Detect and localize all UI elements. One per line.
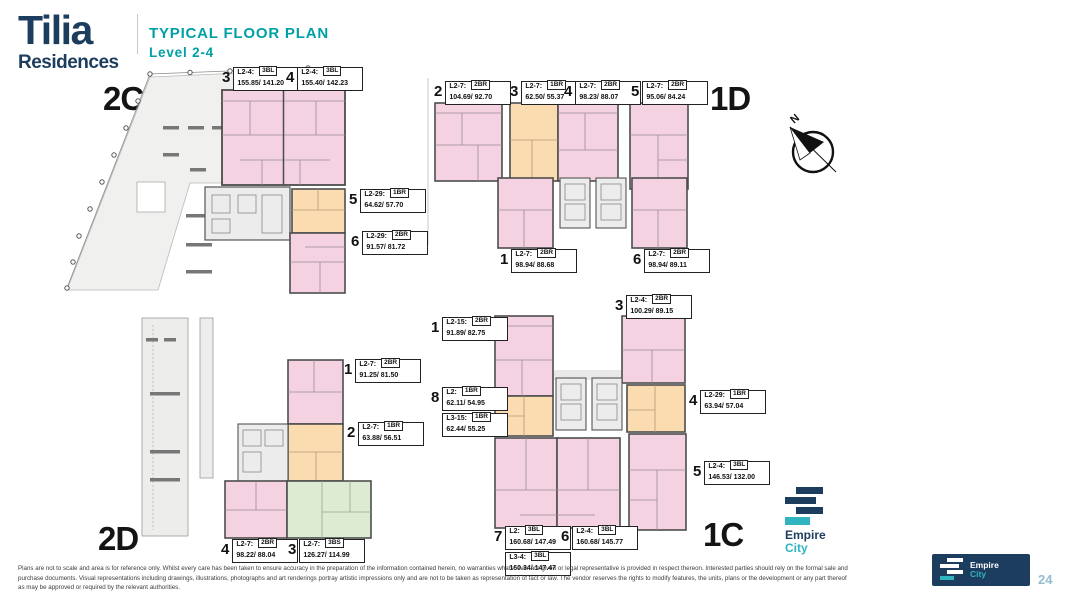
unit-number: 4 — [564, 84, 572, 99]
unit-level: L3-4: — [509, 554, 526, 562]
unit-number: 3 — [510, 84, 518, 99]
unit-label: 4L2-7:2BR98.23/ 88.07 — [564, 81, 641, 105]
unit-level: L2-7: — [525, 83, 542, 91]
unit-number: 6 — [561, 529, 569, 544]
unit-info-row: L2-29:1BR — [704, 392, 762, 402]
unit-label-boxes: L2-7:2BR98.94/ 89.11 — [644, 249, 710, 273]
unit-area: 91.25/ 81.50 — [359, 372, 417, 380]
unit-area: 62.11/ 54.95 — [446, 400, 504, 408]
unit-number: 4 — [286, 70, 294, 85]
unit-level: L2-7: — [579, 83, 596, 91]
unit-level: L2-7: — [515, 251, 532, 259]
unit-type-badge: 2BR — [258, 538, 277, 548]
unit-level: L2: — [509, 528, 520, 536]
unit-label-boxes: L2-7:2BR95.06/ 84.24 — [642, 81, 708, 105]
unit-info-box: L2-7:2BR91.25/ 81.50 — [355, 359, 421, 383]
unit-label-boxes: L2-7:1BR63.88/ 56.51 — [358, 422, 424, 446]
unit-number: 3 — [222, 70, 230, 85]
unit-area: 63.88/ 56.51 — [362, 435, 420, 443]
logo-text-city: City — [970, 570, 999, 579]
unit-label: 4L2-7:2BR98.22/ 88.04 — [221, 539, 298, 563]
unit-label-boxes: L2-7:3BS126.27/ 114.99 — [299, 539, 365, 563]
unit-number: 2 — [434, 84, 442, 99]
unit-area: 160.68/ 147.49 — [509, 539, 567, 547]
page-number: 24 — [1038, 572, 1052, 587]
unit-label: 3L2-7:3BS126.27/ 114.99 — [288, 539, 365, 563]
unit-info-box: L2-7:3BS126.27/ 114.99 — [299, 539, 365, 563]
empire-logo-bars-icon — [785, 487, 826, 525]
unit-level: L2-4: — [237, 69, 254, 77]
unit-area: 98.22/ 88.04 — [236, 552, 294, 560]
unit-area: 63.94/ 57.04 — [704, 403, 762, 411]
unit-label: 4L2-29:1BR63.94/ 57.04 — [689, 390, 766, 414]
unit-info-box: L2-4:2BR100.29/ 89.15 — [626, 295, 692, 319]
unit-info-box: L2-4:3BL155.40/ 142.23 — [297, 67, 363, 91]
unit-area: 104.69/ 92.70 — [449, 94, 507, 102]
unit-number: 6 — [351, 234, 359, 249]
unit-label: 8L2:1BR62.11/ 54.95L3-15:1BR62.44/ 55.25 — [431, 387, 508, 437]
unit-number: 6 — [633, 252, 641, 267]
unit-type-badge: 2BR — [381, 358, 400, 368]
unit-area: 98.94/ 88.68 — [515, 262, 573, 270]
unit-number: 3 — [288, 542, 296, 557]
unit-area: 91.57/ 81.72 — [366, 244, 424, 252]
unit-info-row: L2-7:1BR — [362, 424, 420, 434]
unit-label: 5L2-4:3BL146.53/ 132.00 — [693, 461, 770, 485]
unit-info-box: L2-15:2BR91.89/ 82.75 — [442, 317, 508, 341]
unit-label: 5L2-29:1BR64.62/ 57.70 — [349, 189, 426, 213]
unit-area: 62.44/ 55.25 — [446, 426, 504, 434]
logo-text-city: City — [785, 542, 826, 555]
unit-level: L3-15: — [446, 415, 467, 423]
unit-type-badge: 2BR — [392, 230, 411, 240]
unit-type-badge: 3BL — [323, 66, 341, 76]
unit-type-badge: 1BR — [462, 386, 481, 396]
unit-number: 2 — [347, 425, 355, 440]
unit-label-boxes: L2-4:2BR100.29/ 89.15 — [626, 295, 692, 319]
unit-info-box: L3-15:1BR62.44/ 55.25 — [442, 413, 508, 437]
unit-number: 4 — [221, 542, 229, 557]
unit-label: 6L2-4:3BL160.68/ 145.77 — [561, 526, 638, 550]
unit-label: 1L2-15:2BR91.89/ 82.75 — [431, 317, 508, 341]
unit-label: 2L2-7:1BR63.88/ 56.51 — [347, 422, 424, 446]
unit-number: 5 — [349, 192, 357, 207]
unit-number: 5 — [631, 84, 639, 99]
unit-type-badge: 3BL — [525, 525, 543, 535]
unit-info-row: L2-7:2BR — [515, 251, 573, 261]
unit-label-boxes: L2-7:2BR104.69/ 92.70 — [445, 81, 511, 105]
unit-area: 155.40/ 142.23 — [301, 80, 359, 88]
unit-info-row: L3-15:1BR — [446, 415, 504, 425]
unit-type-badge: 1BR — [384, 421, 403, 431]
unit-level: L2-4: — [576, 528, 593, 536]
unit-type-badge: 3BL — [730, 460, 748, 470]
unit-area: 160.68/ 145.77 — [576, 539, 634, 547]
unit-label-boxes: L2-4:3BL155.40/ 142.23 — [297, 67, 363, 91]
unit-number: 3 — [615, 298, 623, 313]
unit-info-box: L2-29:1BR64.62/ 57.70 — [360, 189, 426, 213]
unit-info-box: L2:1BR62.11/ 54.95 — [442, 387, 508, 411]
unit-number: 4 — [689, 393, 697, 408]
logo-text-empire: Empire — [785, 529, 826, 542]
unit-label-boxes: L2-29:2BR91.57/ 81.72 — [362, 231, 428, 255]
unit-level: L2-29: — [366, 233, 387, 241]
unit-area: 98.23/ 88.07 — [579, 94, 637, 102]
unit-type-badge: 2BR — [668, 80, 687, 90]
unit-number: 1 — [431, 320, 439, 335]
unit-type-badge: 2BR — [537, 248, 556, 258]
unit-info-row: L2-15:2BR — [446, 319, 504, 329]
unit-type-badge: 2BR — [652, 294, 671, 304]
unit-level: L2-29: — [704, 392, 725, 400]
unit-label-boxes: L2-4:3BL146.53/ 132.00 — [704, 461, 770, 485]
unit-info-box: L2-7:2BR95.06/ 84.24 — [642, 81, 708, 105]
unit-area: 146.53/ 132.00 — [708, 474, 766, 482]
unit-info-row: L2-7:2BR — [648, 251, 706, 261]
brochure-page: Tilia Residences TYPICAL FLOOR PLAN Leve… — [0, 0, 1067, 600]
unit-type-badge: 3BL — [259, 66, 277, 76]
unit-type-badge: 2BR — [472, 316, 491, 326]
unit-info-box: L2-7:1BR63.88/ 56.51 — [358, 422, 424, 446]
unit-label: 4L2-4:3BL155.40/ 142.23 — [286, 67, 363, 91]
unit-area: 95.06/ 84.24 — [646, 94, 704, 102]
unit-info-row: L2-4:3BL — [576, 528, 634, 538]
unit-level: L2-4: — [708, 463, 725, 471]
unit-level: L2-7: — [449, 83, 466, 91]
unit-level: L2-29: — [364, 191, 385, 199]
unit-info-row: L2-7:2BR — [646, 83, 704, 93]
unit-level: L2: — [446, 389, 457, 397]
unit-type-badge: 1BR — [730, 389, 749, 399]
unit-label: 1L2-7:2BR91.25/ 81.50 — [344, 359, 421, 383]
unit-info-row: L2-4:3BL — [708, 463, 766, 473]
unit-area: 100.29/ 89.15 — [630, 308, 688, 316]
unit-label-boxes: L2:1BR62.11/ 54.95L3-15:1BR62.44/ 55.25 — [442, 387, 508, 437]
unit-area: 126.27/ 114.99 — [303, 552, 361, 560]
unit-type-badge: 3BL — [531, 551, 549, 561]
unit-number: 1 — [344, 362, 352, 377]
unit-info-box: L2-7:2BR98.94/ 88.68 — [511, 249, 577, 273]
unit-label: 5L2-7:2BR95.06/ 84.24 — [631, 81, 708, 105]
unit-label-boxes: L2-15:2BR91.89/ 82.75 — [442, 317, 508, 341]
unit-label: 2L2-7:2BR104.69/ 92.70 — [434, 81, 511, 105]
unit-level: L2-7: — [646, 83, 663, 91]
unit-info-row: L2-4:2BR — [630, 297, 688, 307]
unit-info-row: L2-29:2BR — [366, 233, 424, 243]
unit-area: 98.94/ 89.11 — [648, 262, 706, 270]
unit-number: 7 — [494, 529, 502, 544]
unit-label: 6L2-29:2BR91.57/ 81.72 — [351, 231, 428, 255]
unit-type-badge: 2BR — [601, 80, 620, 90]
unit-label: 3L2-4:2BR100.29/ 89.15 — [615, 295, 692, 319]
unit-type-badge: 1BR — [472, 412, 491, 422]
unit-type-badge: 2BR — [471, 80, 490, 90]
unit-number: 8 — [431, 390, 439, 405]
unit-label: 6L2-7:2BR98.94/ 89.11 — [633, 249, 710, 273]
unit-info-row: L2-7:2BR — [579, 83, 637, 93]
unit-info-row: L2:3BL — [509, 528, 567, 538]
unit-area: 91.89/ 82.75 — [446, 330, 504, 338]
unit-labels-layer: 3L2-4:3BL155.85/ 141.204L2-4:3BL155.40/ … — [0, 0, 1067, 600]
unit-level: L2-7: — [236, 541, 253, 549]
unit-info-row: L2-7:3BS — [303, 541, 361, 551]
unit-label-boxes: L2-4:3BL160.68/ 145.77 — [572, 526, 638, 550]
unit-label-boxes: L2-29:1BR63.94/ 57.04 — [700, 390, 766, 414]
unit-info-row: L2-7:2BR — [449, 83, 507, 93]
unit-type-badge: 1BR — [390, 188, 409, 198]
unit-info-row: L2-4:3BL — [301, 69, 359, 79]
unit-info-row: L3-4:3BL — [509, 554, 567, 564]
unit-label-boxes: L2-7:2BR91.25/ 81.50 — [355, 359, 421, 383]
unit-info-row: L2-7:2BR — [359, 361, 417, 371]
empire-city-logo: Empire City — [785, 487, 826, 554]
unit-level: L2-7: — [303, 541, 320, 549]
empire-logo-bars-icon — [940, 558, 963, 582]
unit-number: 1 — [500, 252, 508, 267]
unit-info-row: L2:1BR — [446, 389, 504, 399]
unit-info-box: L2-29:1BR63.94/ 57.04 — [700, 390, 766, 414]
unit-label-boxes: L2-29:1BR64.62/ 57.70 — [360, 189, 426, 213]
unit-type-badge: 2BR — [670, 248, 689, 258]
unit-label: 1L2-7:2BR98.94/ 88.68 — [500, 249, 577, 273]
unit-area: 64.62/ 57.70 — [364, 202, 422, 210]
unit-type-badge: 3BL — [598, 525, 616, 535]
unit-level: L2-4: — [301, 69, 318, 77]
unit-level: L2-4: — [630, 297, 647, 305]
unit-level: L2-7: — [362, 424, 379, 432]
unit-info-box: L2-4:3BL160.68/ 145.77 — [572, 526, 638, 550]
unit-info-box: L2-7:2BR98.94/ 89.11 — [644, 249, 710, 273]
empire-city-footer-logo: Empire City — [932, 554, 1030, 586]
unit-info-box: L2-29:2BR91.57/ 81.72 — [362, 231, 428, 255]
unit-number: 5 — [693, 464, 701, 479]
unit-label-boxes: L2-7:2BR98.94/ 88.68 — [511, 249, 577, 273]
unit-info-box: L2-4:3BL146.53/ 132.00 — [704, 461, 770, 485]
unit-info-box: L2-7:2BR104.69/ 92.70 — [445, 81, 511, 105]
unit-info-row: L2-29:1BR — [364, 191, 422, 201]
disclaimer-text: Plans are not to scale and area is for r… — [18, 564, 853, 593]
unit-level: L2-7: — [359, 361, 376, 369]
unit-type-badge: 3BS — [325, 538, 344, 548]
unit-level: L2-15: — [446, 319, 467, 327]
unit-level: L2-7: — [648, 251, 665, 259]
unit-info-row: L2-7:2BR — [236, 541, 294, 551]
